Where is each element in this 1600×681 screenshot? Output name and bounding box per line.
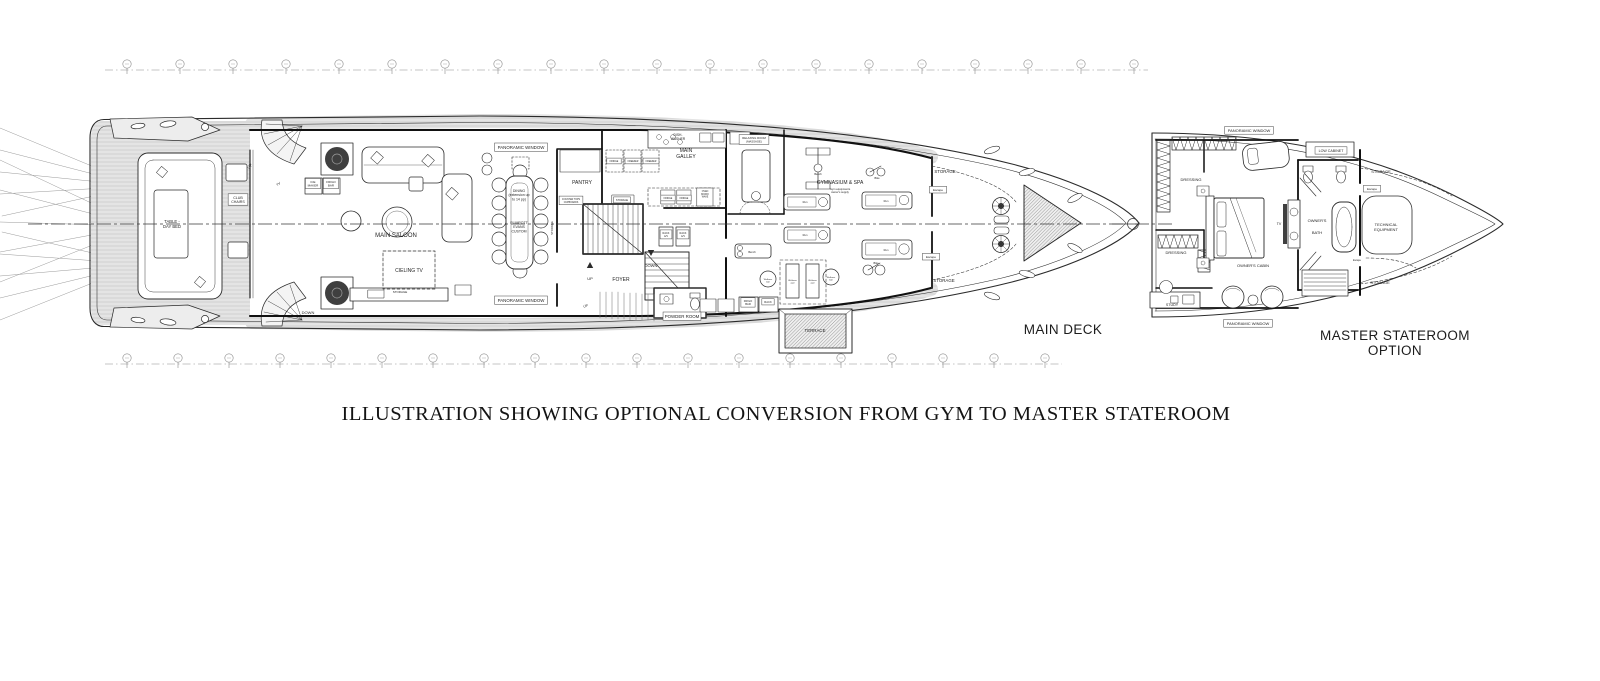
bike-top-label: Bike [874, 176, 880, 180]
svg-text:BAR: BAR [745, 302, 751, 306]
run-1-label: Run [803, 200, 808, 204]
svg-text:GALLEY: GALLEY [676, 154, 696, 160]
svg-text:Bench: Bench [748, 250, 756, 254]
gymnasium-label: GYMNASIUM & SPA [817, 180, 864, 186]
main-saloon-label: MAIN SALOON [375, 233, 417, 239]
rack-gym-label: RACK [762, 299, 774, 305]
escape-bow-bottom-label: Escape [922, 253, 939, 260]
svg-text:MAKER: MAKER [308, 184, 320, 188]
svg-text:Run: Run [803, 200, 808, 204]
svg-text:Run: Run [884, 248, 889, 252]
tv-master-label: TV [1277, 222, 1282, 226]
storage-bow-top-label: STORAGE [934, 169, 955, 174]
svg-text:A/V: A/V [664, 235, 668, 238]
pantry-label: PANTRY [572, 180, 592, 186]
svg-text:STORAGE: STORAGE [616, 199, 629, 202]
master-stateroom-drawing [1150, 133, 1503, 317]
svg-text:DRESSING: DRESSING [1166, 250, 1187, 255]
svg-text:owner's supply: owner's supply [831, 190, 849, 194]
freezer-2-label: FREEZER [643, 158, 659, 164]
dressing-bottom-label: DRESSING [1166, 250, 1187, 255]
svg-text:Escape: Escape [1367, 187, 1377, 191]
svg-text:A/V: A/V [681, 235, 685, 238]
svg-text:Escape: Escape [933, 188, 943, 192]
svg-text:CIELING TV: CIELING TV [395, 268, 423, 274]
run-3-label: Run [803, 233, 808, 237]
svg-text:RACK: RACK [764, 300, 772, 304]
svg-text:OVEN: OVEN [702, 191, 709, 193]
up-foyer-label: UP [587, 276, 593, 281]
rack-av-2-label: RACKA/V [677, 230, 689, 239]
bike-bottom-label: Bike [873, 261, 879, 265]
master-title-line1: MASTER STATEROOM [1300, 329, 1490, 344]
svg-text:WAVE: WAVE [702, 196, 709, 199]
fridge-1-label: FRIDGE [607, 158, 621, 164]
bench-top-label: Bench [814, 172, 822, 176]
storage-saloon-label: STORAGE [393, 290, 408, 294]
svg-text:OWNER'S CABIN: OWNER'S CABIN [1237, 263, 1269, 268]
svg-text:STORAGE: STORAGE [933, 278, 954, 283]
svg-text:FREEZER: FREEZER [646, 161, 657, 163]
station-grid-top [105, 60, 1148, 74]
table-day-bed-label: TABLE -DAY BED [163, 219, 181, 229]
svg-text:CUPBOARDS: CUPBOARDS [564, 201, 579, 204]
svg-text:PANORAMIC WINDOW: PANORAMIC WINDOW [1227, 321, 1270, 326]
svg-text:POWDER ROOM: POWDER ROOM [665, 314, 700, 319]
svg-text:STORAGE: STORAGE [550, 221, 554, 235]
svg-text:FRIDGE: FRIDGE [680, 198, 689, 200]
svg-text:DAY BED: DAY BED [163, 224, 181, 229]
panoramic-window-m-top-label: PANORAMIC WINDOW [1225, 126, 1274, 134]
rack-av-1-label: RACKA/V [660, 230, 672, 239]
svg-text:TV: TV [1277, 222, 1282, 226]
bench-bottom-label: Bench [748, 250, 756, 254]
svg-text:DOWN: DOWN [645, 263, 658, 268]
round-table-bottom [321, 277, 353, 309]
storage-pantry-label: STORAGE [614, 197, 631, 203]
windlass-winches [993, 198, 1010, 253]
svg-text:Run: Run [884, 199, 889, 203]
gym-sub-label: Gym equipmentsowner's supply [830, 187, 851, 194]
svg-text:(MASSAGE): (MASSAGE) [746, 139, 762, 143]
dressing-top-label: DRESSING [1181, 177, 1202, 182]
svg-text:PANTRY: PANTRY [572, 180, 592, 186]
relaxing-room-label: RELAXING ROOM(MASSAGE) [739, 135, 769, 145]
svg-text:BATH: BATH [1312, 230, 1322, 235]
caption-text: ILLUSTRATION SHOWING OPTIONAL CONVERSION… [0, 403, 1572, 426]
run-4-label: Run [884, 248, 889, 252]
svg-text:UP: UP [587, 276, 593, 281]
oven-label: OVENMICROWAVE [701, 191, 709, 199]
ice-maker-label: ICEMAKER [305, 178, 320, 188]
down-foyer-label: DOWN [645, 263, 658, 268]
yacht-deck-plan-page: CLUBCHAIRSTABLE -DAY BEDICEMAKERFRIGOBAR… [0, 0, 1600, 681]
svg-text:BAR: BAR [328, 184, 335, 188]
svg-text:STORAGE: STORAGE [393, 290, 408, 294]
svg-text:STORAGE: STORAGE [1371, 169, 1391, 174]
svg-text:STORAGE: STORAGE [934, 169, 955, 174]
fridge-2-label: FRIDGE [661, 195, 675, 201]
svg-text:FRIDGE: FRIDGE [610, 161, 619, 163]
svg-text:CHAIRS: CHAIRS [231, 200, 245, 204]
svg-text:to 14 pp): to 14 pp) [512, 197, 526, 201]
down-aft-label: DOWN [302, 310, 315, 315]
svg-text:Bench: Bench [814, 172, 822, 176]
storage-stair-label: STORAGE [550, 221, 554, 235]
svg-text:CUSTOM: CUSTOM [511, 229, 526, 233]
svg-text:FRIDGE: FRIDGE [664, 198, 673, 200]
svg-text:PANORAMIC WINDOW: PANORAMIC WINDOW [498, 145, 546, 150]
freezer-1-label: FREEZER [625, 158, 641, 164]
low-cabinet-label: LOW CABINET [1315, 147, 1347, 154]
technical-equipment-label: TECHNICALEQUIPMENT [1374, 222, 1398, 232]
svg-text:ball: ball [766, 282, 770, 284]
svg-text:Escape: Escape [926, 255, 936, 259]
escape-bow-top-label: Escape [929, 186, 946, 193]
escape-master-top-label: Escape [1363, 185, 1380, 192]
svg-text:PANORAMIC WINDOW: PANORAMIC WINDOW [498, 298, 546, 303]
master-title-line2: OPTION [1300, 344, 1490, 359]
station-grid-bottom [105, 354, 1062, 368]
svg-text:STORAGE: STORAGE [1370, 280, 1390, 285]
svg-text:Escape: Escape [1353, 259, 1362, 262]
frigo-bar-gym-label: FRIGOBAR [741, 298, 755, 307]
svg-text:DRESSING: DRESSING [1181, 177, 1202, 182]
terrace-label: TERRACE [805, 328, 826, 333]
round-table-top [321, 143, 353, 175]
powder-room-label: POWDER ROOM [663, 312, 701, 320]
storage-bow-bottom-label: STORAGE [933, 278, 954, 283]
svg-text:LOW CABINET: LOW CABINET [1319, 149, 1345, 153]
panoramic-window-bottom-label: PANORAMIC WINDOW [495, 296, 548, 304]
svg-text:EQUIPMENT: EQUIPMENT [1374, 227, 1398, 232]
storage-master-top-label: STORAGE [1371, 169, 1391, 174]
run-2-label: Run [884, 199, 889, 203]
study-label: STUDY [1166, 303, 1179, 307]
svg-text:FOYER: FOYER [612, 277, 630, 283]
main-deck-drawing [0, 116, 1139, 353]
svg-text:ball: ball [829, 280, 833, 282]
panoramic-window-top-label: PANORAMIC WINDOW [495, 143, 548, 151]
fridge-3-label: FRIDGE [677, 195, 691, 201]
svg-text:Bike: Bike [873, 261, 879, 265]
svg-text:Run: Run [803, 233, 808, 237]
club-chairs-label: CLUBCHAIRS [228, 194, 248, 205]
svg-text:WASHER: WASHER [671, 137, 686, 141]
master-stateroom-option-title: MASTER STATEROOM OPTION [1300, 329, 1490, 358]
svg-text:MAIN SALOON: MAIN SALOON [375, 233, 417, 239]
svg-text:MICRO: MICRO [701, 194, 709, 196]
svg-text:DOWN: DOWN [302, 310, 315, 315]
main-deck-title: MAIN DECK [983, 322, 1143, 337]
frigo-bar-saloon-label: FRIGOBAR [323, 178, 338, 188]
counter-tops-label: COUNTER TOPSCUPBOARDS [559, 196, 583, 205]
svg-text:OWNER'S: OWNER'S [1308, 218, 1327, 223]
foyer-label: FOYER [612, 277, 630, 283]
cieling-tv-label: CIELING TV [395, 268, 423, 274]
svg-text:FREEZER: FREEZER [628, 161, 639, 163]
storage-master-bottom-label: STORAGE [1370, 280, 1390, 285]
escape-master-bottom-label: Escape [1353, 259, 1362, 262]
owners-cabin-label: OWNER'S CABIN [1237, 263, 1269, 268]
svg-text:TERRACE: TERRACE [805, 328, 826, 333]
svg-text:PANORAMIC WINDOW: PANORAMIC WINDOW [1228, 128, 1271, 133]
svg-text:Bike: Bike [874, 176, 880, 180]
panoramic-window-m-bottom-label: PANORAMIC WINDOW [1224, 319, 1273, 327]
svg-text:COUNTER TOPS: COUNTER TOPS [562, 199, 581, 201]
svg-text:GYMNASIUM & SPA: GYMNASIUM & SPA [817, 180, 864, 186]
svg-text:STUDY: STUDY [1166, 303, 1179, 307]
